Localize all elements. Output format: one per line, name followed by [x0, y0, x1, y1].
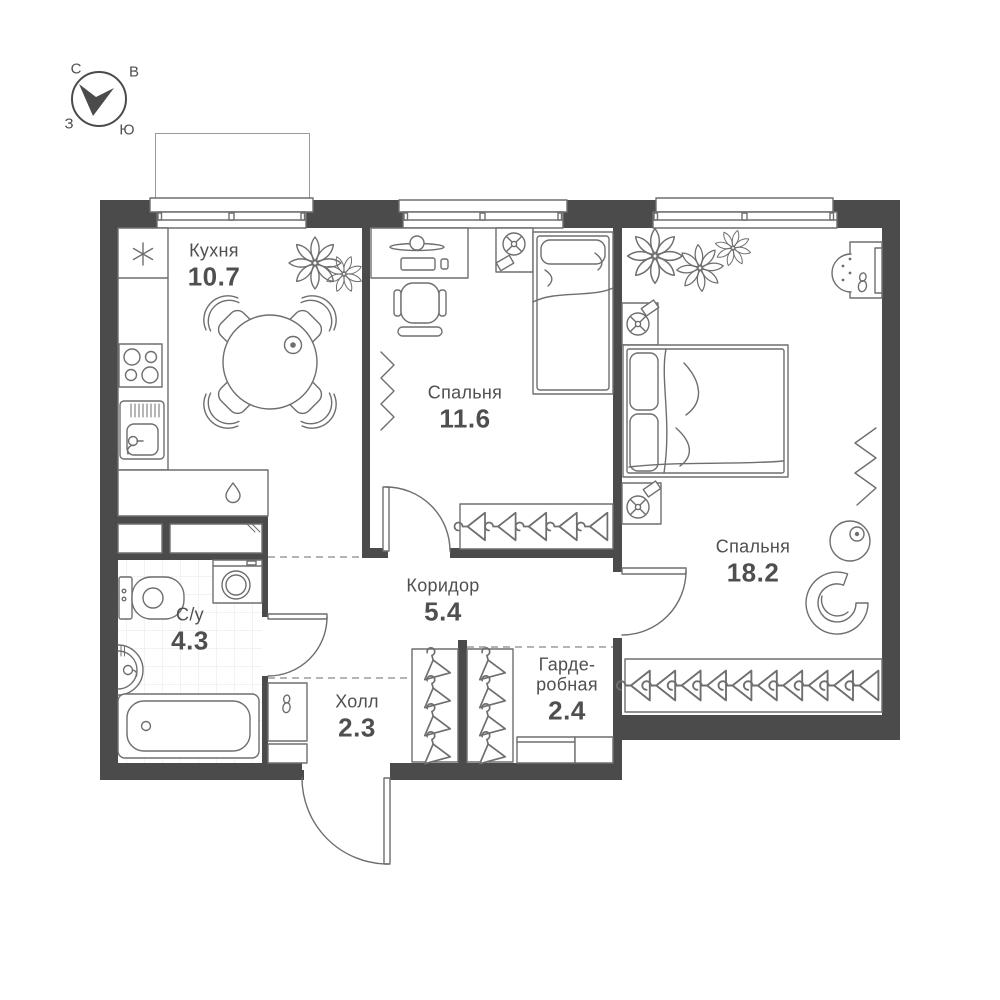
double-bed-icon: [623, 345, 788, 477]
compass-east-label: В: [129, 64, 139, 81]
vent-icon: [496, 228, 533, 272]
wardrobe-rail-icon: [617, 659, 882, 712]
vent-icon: [622, 481, 661, 524]
stove-icon: [119, 344, 162, 387]
room-name: Спальня: [716, 536, 790, 556]
bedroom-large-fixtures: [617, 223, 882, 712]
wardrobe-unit-icon: [467, 645, 513, 764]
vent-shaft: [118, 524, 162, 553]
compass-icon: [72, 72, 126, 126]
kitchen-sink-icon: [120, 401, 164, 459]
window-icon: [150, 198, 313, 228]
wardrobe-cabinet-icon: [517, 737, 613, 763]
room-area: 5.4: [406, 598, 479, 627]
room-label-kitchen: Кухня 10.7: [188, 240, 241, 291]
radiator-icon: [855, 428, 876, 505]
single-bed-icon: [533, 232, 613, 394]
room-label-bedroom-large: Спальня 18.2: [716, 536, 790, 587]
office-chair-icon: [394, 283, 446, 336]
compass-north-label: С: [71, 61, 82, 78]
room-area: 2.3: [335, 714, 379, 743]
room-name: Кухня: [188, 240, 241, 260]
compass-west-label: З: [64, 116, 73, 133]
room-name: Спальня: [428, 382, 502, 402]
armchair-icon: [806, 572, 868, 634]
compass-south-label: Ю: [119, 122, 134, 139]
room-area: 18.2: [716, 559, 790, 588]
room-label-bedroom-small: Спальня 11.6: [428, 382, 502, 433]
hanger-rack-icon: [455, 504, 614, 549]
wardrobe-unit-icon: [412, 645, 458, 764]
room-name: робная: [536, 674, 598, 694]
vent-shaft: [170, 524, 262, 553]
round-chair-icon: [832, 254, 851, 292]
radiator-icon: [381, 352, 394, 430]
room-label-wardrobe: Гарде- робная 2.4: [536, 654, 598, 725]
room-area: 11.6: [428, 405, 502, 434]
room-name: Холл: [335, 691, 379, 711]
room-label-corridor: Коридор 5.4: [406, 575, 479, 626]
bathtub-icon: [118, 694, 259, 758]
room-area: 2.4: [536, 697, 598, 726]
room-name: Гарде-: [536, 654, 598, 674]
window-icon: [653, 198, 837, 228]
plant-icon: [289, 237, 368, 298]
room-label-hall: Холл 2.3: [335, 691, 379, 742]
bedroom-small-door-icon: [383, 487, 450, 551]
window-icon: [399, 200, 567, 228]
desk-icon: [850, 242, 882, 298]
dining-table-icon: [195, 287, 345, 437]
desk-icon: [371, 228, 468, 278]
room-name: С/у: [171, 604, 209, 624]
bedroom-large-door-icon: [622, 568, 686, 635]
room-label-bathroom: С/у 4.3: [171, 604, 209, 655]
room-area: 4.3: [171, 627, 209, 656]
room-area: 10.7: [188, 263, 241, 292]
plan-drawing: [0, 0, 1000, 1000]
room-name: Коридор: [406, 575, 479, 595]
compass-arrow: [79, 84, 114, 116]
bathroom-door-icon: [268, 614, 327, 676]
vent-icon: [622, 300, 659, 345]
washing-machine-icon: [213, 560, 262, 603]
floor-plan: С В З Ю Кухня 10.7 Спальня 11.6 Спальня …: [0, 0, 1000, 1000]
kitchen-cabinet-icon: [118, 470, 268, 516]
hall-cabinet-icon: [268, 683, 307, 763]
windows: [150, 198, 837, 228]
entrance-door-icon: [302, 778, 390, 864]
plant-icon: [628, 223, 758, 301]
side-table-icon: [830, 521, 870, 561]
kitchen-fixtures: [118, 228, 368, 516]
